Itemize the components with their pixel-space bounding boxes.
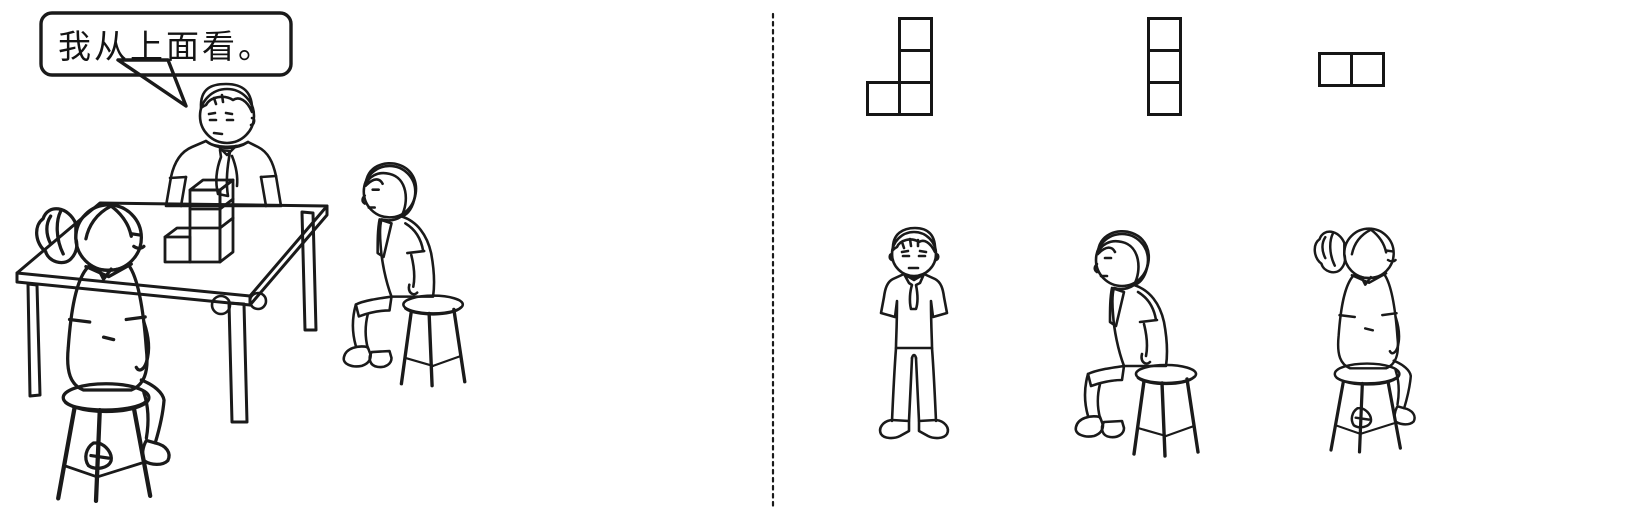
view-shape-1 [866,17,933,116]
view-shape-3 [1318,52,1385,87]
view-shape-2 [1147,17,1182,116]
view-cell [1147,17,1182,52]
view-cell [1350,52,1385,87]
cube-left-front-face [165,237,190,262]
seated-boy-left-scene [344,163,465,385]
view-cell [898,81,933,116]
standing-boy-right-panel [880,228,948,438]
view-cell [1318,52,1353,87]
table-top [17,203,327,296]
view-cell [866,81,901,116]
view-cell [1147,49,1182,84]
seated-girl-left-scene [37,205,169,501]
cube-block [165,180,233,262]
view-cell [1147,81,1182,116]
table-leg [28,284,40,396]
seated-boy-right-panel [1076,231,1198,456]
round-object-under-table [212,296,230,314]
speech-bubble-text: 我从上面看。 [43,14,289,74]
table-leg [229,303,247,422]
view-cell [898,17,933,52]
cube-front-face [190,190,220,262]
textbook-exercise: 我从上面看。 [0,0,1634,525]
scene-art [0,0,1634,525]
table-leg [302,212,316,330]
seated-girl-right-panel [1315,229,1415,452]
view-cell [898,49,933,84]
